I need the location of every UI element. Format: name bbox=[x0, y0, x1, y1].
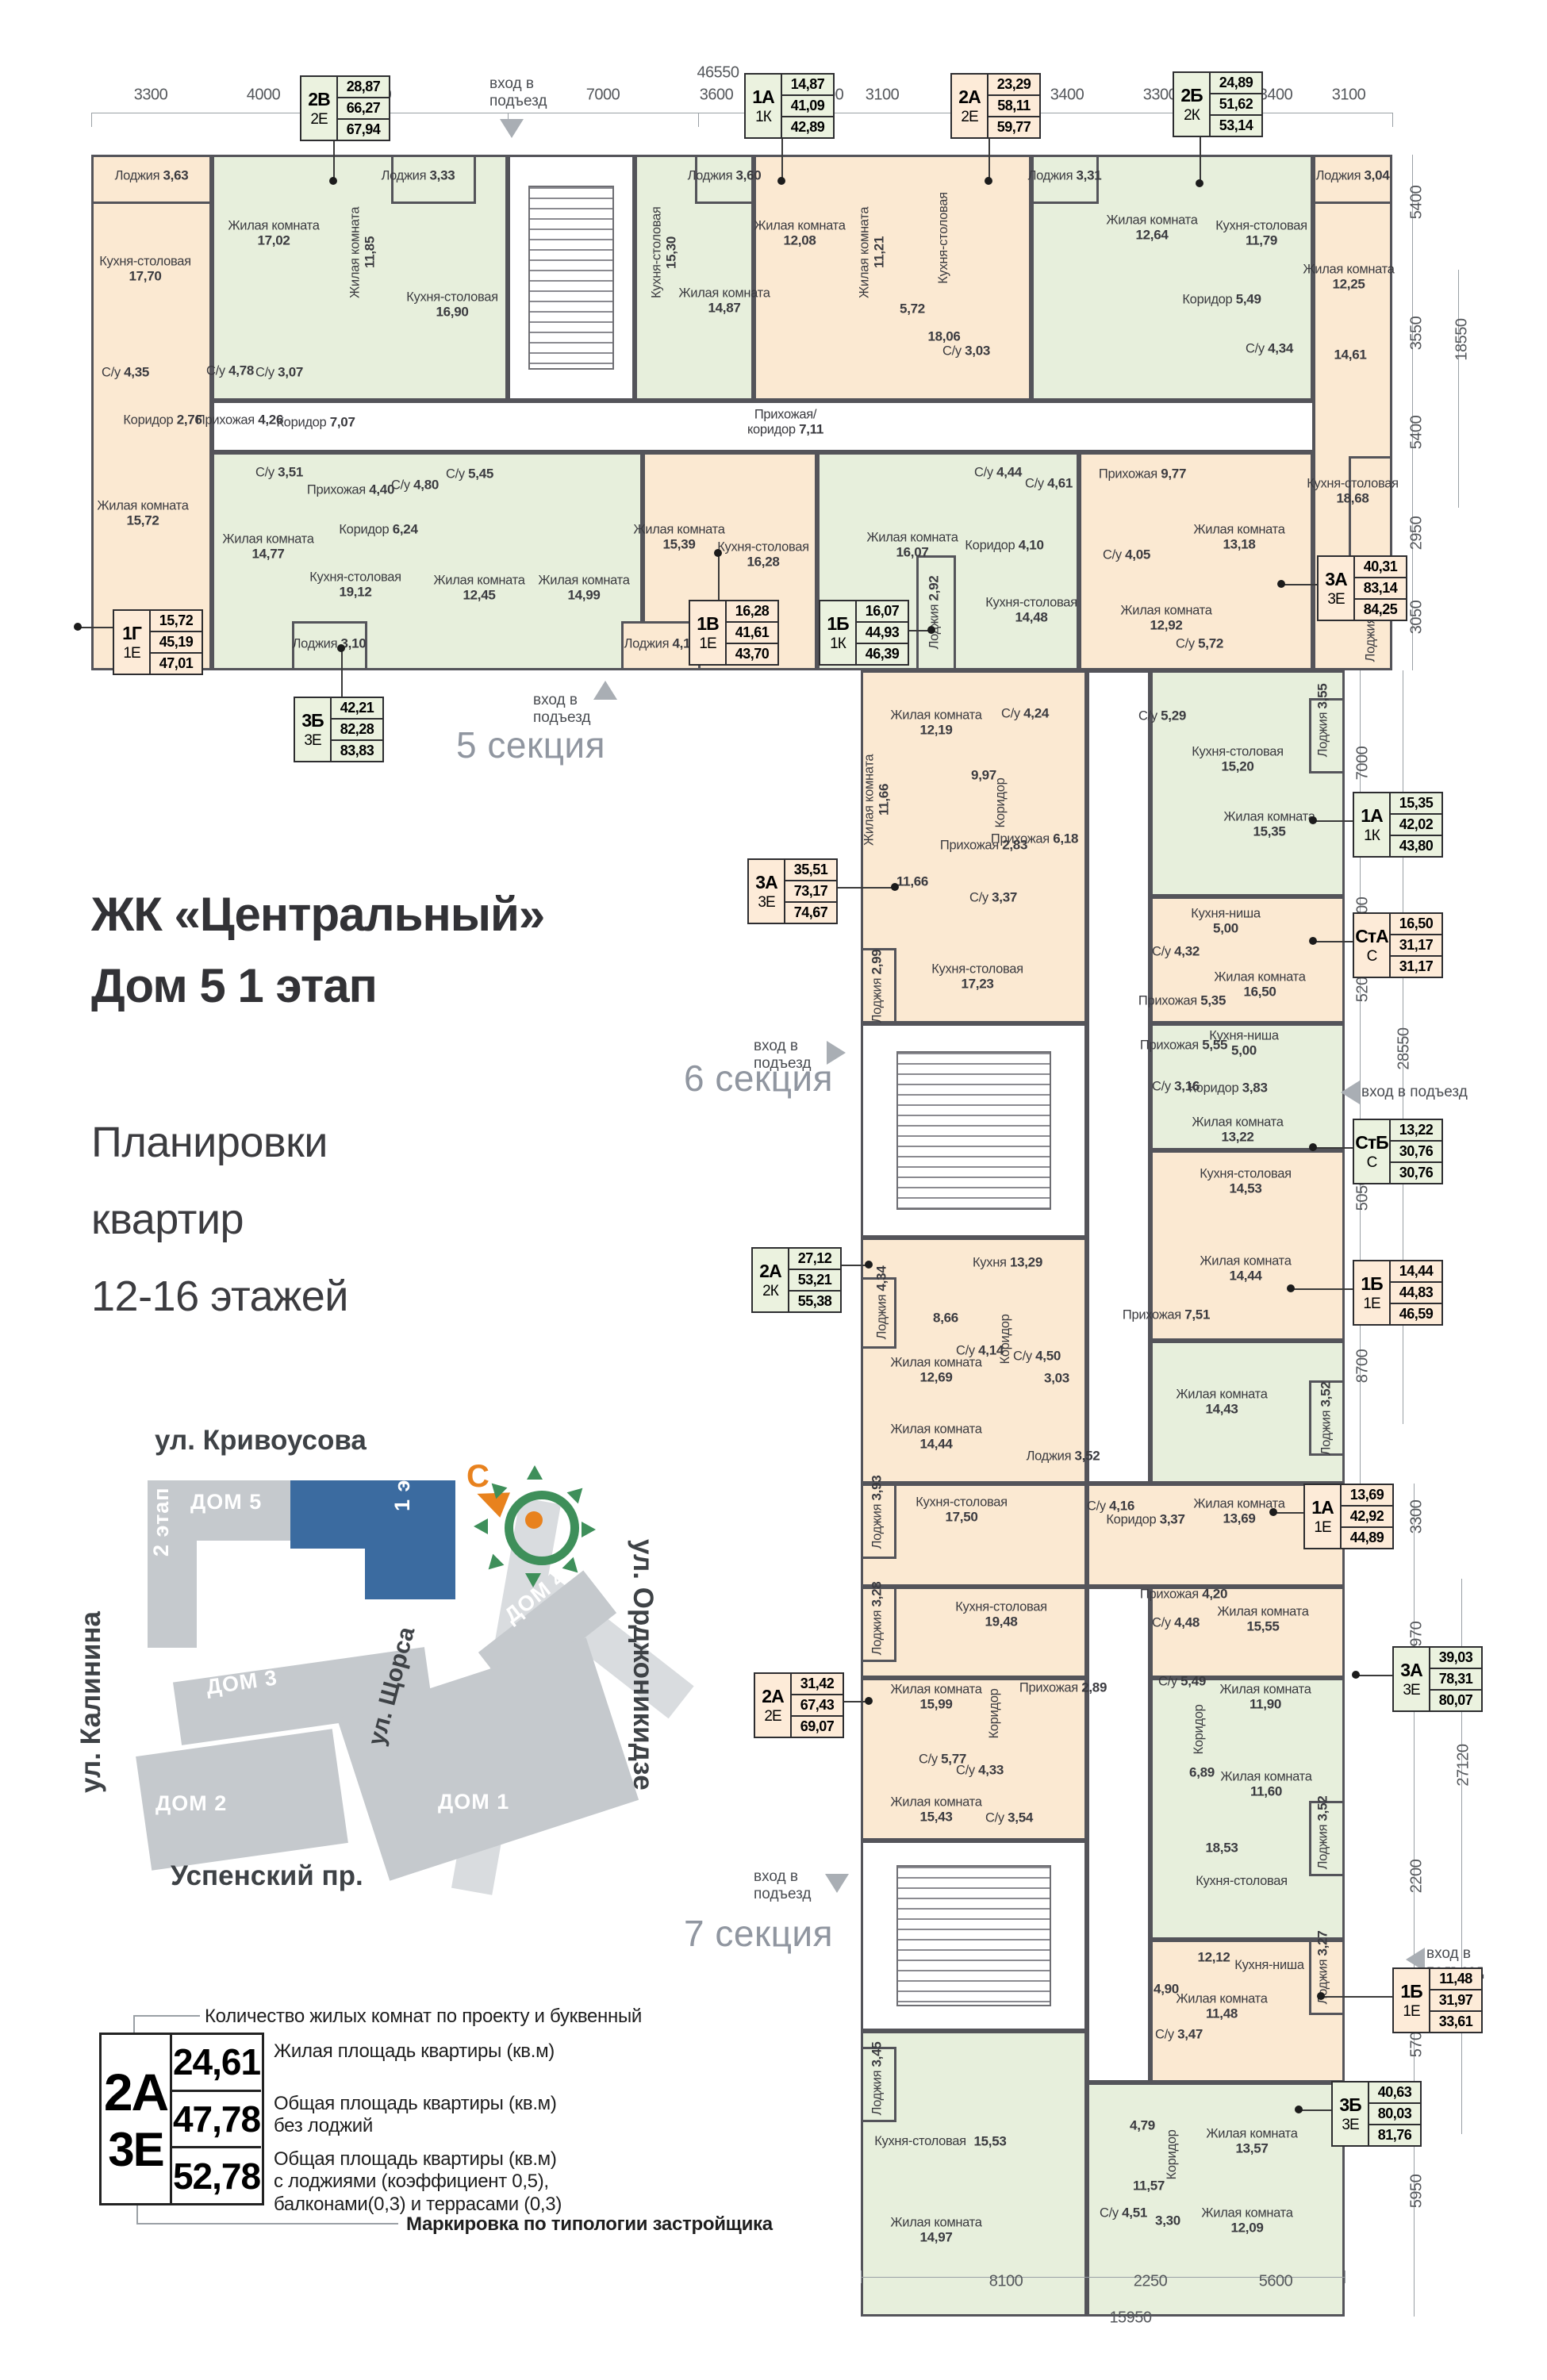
dimension-label: 3400 bbox=[1050, 86, 1084, 105]
apartment-area-value: 80,07 bbox=[1430, 1691, 1481, 1710]
room-label: Кухня-столовая 11,79 bbox=[1215, 220, 1308, 249]
apartment-code-main: 1А bbox=[1361, 805, 1382, 827]
apartment-area-value: 67,94 bbox=[338, 120, 389, 140]
room-label: Прихожая 7,51 bbox=[1123, 1308, 1210, 1323]
entrance-label: вход в подъезд bbox=[754, 1038, 812, 1073]
room-label: Жилая комната 15,39 bbox=[632, 524, 726, 553]
room-label: С/у 4,05 bbox=[1103, 548, 1150, 563]
room-label: Кухня-столовая bbox=[1196, 1875, 1288, 1889]
room-label: Лоджия 2,92 bbox=[927, 576, 942, 650]
room-label: Лоджия 4,34 bbox=[875, 1266, 890, 1340]
apartment-code-type: 1Е bbox=[123, 645, 140, 662]
apartment-area-value: 40,63 bbox=[1369, 2082, 1420, 2104]
compass-tick bbox=[525, 1573, 541, 1587]
room-label: С/у 3,07 bbox=[255, 366, 303, 381]
room-label: Лоджия 3,60 bbox=[688, 169, 762, 184]
stair-core bbox=[508, 155, 635, 401]
room-label: Жилая комната 12,69 bbox=[889, 1357, 983, 1386]
apartment-areas: 40,6380,0381,76 bbox=[1369, 2082, 1420, 2145]
legend-code-top: 2А bbox=[104, 2062, 167, 2122]
room-label: Лоджия 3,52 bbox=[1027, 1449, 1100, 1464]
compass-tick bbox=[474, 1518, 488, 1534]
room-label: Жилая комната 11,90 bbox=[1219, 1683, 1312, 1713]
apartment-code-main: 1В bbox=[697, 613, 718, 635]
room-label: С/у 4,33 bbox=[956, 1764, 1004, 1779]
compass-tick bbox=[567, 1483, 589, 1504]
apartment-code-type: 2Е bbox=[764, 1708, 781, 1725]
apartment-areas: 39,0378,3180,07 bbox=[1430, 1648, 1481, 1710]
apartment-code-type: 3Е bbox=[1342, 2117, 1358, 2134]
dimension-label: 27120 bbox=[1455, 1744, 1473, 1786]
apartment-area-value: 78,31 bbox=[1430, 1669, 1481, 1691]
room-label: Кухня-ниша bbox=[1234, 1959, 1303, 1973]
apartment-code: 3А3Е bbox=[1319, 557, 1355, 620]
room-label: Жилая комната 14,77 bbox=[221, 533, 315, 562]
room-label: Коридор 5,49 bbox=[1182, 293, 1261, 308]
apartment-area-value: 83,14 bbox=[1355, 578, 1406, 600]
room-label: Жилая комната 15,55 bbox=[1216, 1606, 1310, 1635]
room-label: Жилая комната 12,45 bbox=[432, 574, 526, 604]
apartment-areas: 16,0744,9346,39 bbox=[857, 601, 908, 664]
room-label: С/у 4,32 bbox=[1152, 945, 1200, 960]
room-label: С/у 4,16 bbox=[1087, 1499, 1134, 1514]
apartment-area-value: 55,38 bbox=[789, 1292, 840, 1311]
apartment-code-main: 1Б bbox=[827, 613, 848, 635]
room-label: Жилая комната 16,50 bbox=[1213, 971, 1307, 1000]
dimension-label: 18550 bbox=[1453, 318, 1472, 360]
room-label: Жилая комната 14,97 bbox=[889, 2217, 983, 2246]
room-label: Прихожая 2,89 bbox=[1019, 1681, 1107, 1696]
map-street-label: Успенский пр. bbox=[171, 1860, 363, 1892]
apartment-area-value: 73,17 bbox=[785, 881, 836, 903]
room-label: Жилая комната 14,99 bbox=[537, 574, 631, 604]
apartment-area-value: 30,76 bbox=[1391, 1142, 1441, 1163]
apartment-code-main: 1А bbox=[752, 86, 773, 108]
apartment-code: СтБС bbox=[1354, 1120, 1391, 1183]
apartment-areas: 23,2958,1159,77 bbox=[988, 75, 1039, 137]
apartment-areas: 13,2230,7630,76 bbox=[1391, 1120, 1441, 1183]
dimension-label: 5400 bbox=[1408, 186, 1426, 220]
room-label: С/у 3,37 bbox=[969, 891, 1017, 906]
callout-anchor-dot bbox=[1277, 580, 1285, 588]
apartment-area-value: 44,89 bbox=[1342, 1528, 1392, 1548]
apartment-area-value: 16,07 bbox=[857, 601, 908, 623]
room-label: Жилая комната 12,64 bbox=[1105, 214, 1199, 244]
apartment-callout: 1А1К14,8741,0942,89 bbox=[744, 73, 835, 139]
callout-anchor-dot bbox=[891, 883, 899, 891]
apartment-area-value: 31,17 bbox=[1391, 957, 1441, 977]
room-label: 4,79 bbox=[1130, 2119, 1155, 2134]
callout-anchor-dot bbox=[329, 177, 337, 185]
apartment-area-value: 67,43 bbox=[792, 1695, 843, 1717]
legend-row-label: Общая площадь квартиры (кв.м) без лоджий bbox=[274, 2093, 557, 2138]
callout-leader-line bbox=[1313, 820, 1353, 822]
room-label: Лоджия 4,18 bbox=[624, 637, 698, 652]
apartment-code-main: 3Б bbox=[1339, 2094, 1361, 2116]
apartment-areas: 16,2841,6143,70 bbox=[727, 601, 777, 664]
apartment-code-main: 3Б bbox=[301, 710, 323, 731]
room-label: Коридор 3,83 bbox=[1188, 1081, 1267, 1096]
room-label: Жилая комната 13,57 bbox=[1205, 2128, 1299, 2157]
dimension-label: 4000 bbox=[247, 86, 281, 105]
room bbox=[1087, 1587, 1150, 2082]
apartment-area-value: 23,29 bbox=[988, 75, 1039, 96]
room-label: 3,03 bbox=[1044, 1372, 1069, 1387]
apartment-area-value: 14,44 bbox=[1391, 1261, 1441, 1283]
dimension-label: 2950 bbox=[1408, 516, 1426, 551]
room-label: Жилая комната 15,99 bbox=[889, 1683, 983, 1713]
room-label: Кухня-столовая 14,53 bbox=[1199, 1168, 1292, 1197]
room bbox=[754, 155, 1031, 401]
map-building bbox=[148, 1541, 197, 1648]
callout-anchor-dot bbox=[1287, 1284, 1295, 1292]
apartment-area-value: 44,83 bbox=[1391, 1283, 1441, 1304]
apartment-callout: 3А3Е39,0378,3180,07 bbox=[1392, 1646, 1483, 1712]
room-label: Кухня-столовая 19,12 bbox=[309, 571, 402, 601]
apartment-code: 3А3Е bbox=[749, 860, 785, 923]
apartment-callout: 2А2Е31,4267,4369,07 bbox=[754, 1672, 844, 1738]
callout-anchor-dot bbox=[1309, 816, 1317, 824]
apartment-code: 3А3Е bbox=[1394, 1648, 1430, 1710]
room-label: Кухня-ниша 5,00 bbox=[1179, 908, 1273, 937]
apartment-code-type: С bbox=[1367, 948, 1377, 965]
dimension-label: 5600 bbox=[1259, 2273, 1293, 2291]
room bbox=[1087, 670, 1150, 1484]
room-label: Лоджия 3,93 bbox=[870, 1476, 885, 1549]
map-street-label: ул. Орджоникидзе bbox=[627, 1539, 658, 1791]
apartment-code-main: 2Б bbox=[1180, 85, 1202, 106]
room-label: Кухня-столовая 17,70 bbox=[98, 255, 192, 285]
room-label: Жилая комната 12,08 bbox=[753, 220, 846, 249]
room-label: Прихожая 4,26 bbox=[196, 413, 283, 428]
room-label: Коридор 2,76 bbox=[123, 413, 202, 428]
compass-ring bbox=[505, 1491, 579, 1565]
dimension-label: 3100 bbox=[866, 86, 900, 105]
compass-icon: С bbox=[470, 1464, 589, 1583]
room-label: Кухня-столовая 14,48 bbox=[985, 597, 1078, 626]
entrance-label: вход в подъезд bbox=[1361, 1084, 1468, 1101]
callout-anchor-dot bbox=[777, 177, 785, 185]
apartment-code: 1А1Е bbox=[1305, 1485, 1342, 1548]
room-label: Кухня-столовая 17,50 bbox=[915, 1496, 1008, 1526]
entrance-label: вход в подъезд bbox=[533, 692, 591, 727]
apartment-area-value: 15,72 bbox=[151, 611, 202, 632]
apartment-area-value: 13,22 bbox=[1391, 1120, 1441, 1142]
room-label: С/у 5,45 bbox=[446, 467, 493, 482]
apartment-callout: 1Б1Е14,4444,8346,59 bbox=[1353, 1260, 1443, 1326]
apartment-callout: 1Г1Е15,7245,1947,01 bbox=[113, 609, 203, 675]
dimension-label: 3300 bbox=[134, 86, 168, 105]
apartment-areas: 35,5173,1774,67 bbox=[785, 860, 836, 923]
room-label: С/у 4,35 bbox=[102, 366, 149, 381]
room-label: Жилая комната 17,02 bbox=[227, 220, 321, 249]
apartment-callout: 2А2Е23,2958,1159,77 bbox=[950, 73, 1041, 139]
room-label: С/у 3,51 bbox=[255, 466, 303, 481]
room-label: Лоджия 3,55 bbox=[1316, 684, 1331, 758]
dimension-label: 3600 bbox=[700, 86, 734, 105]
apartment-code-main: 1Г bbox=[122, 623, 141, 644]
apartment-code-type: 1Е bbox=[699, 635, 716, 653]
stairs-icon bbox=[528, 186, 614, 369]
apartment-callout: 3Б3Е42,2182,2883,83 bbox=[294, 697, 384, 762]
room-label: 15,53 bbox=[973, 2135, 1006, 2150]
apartment-callout: 1А1К15,3542,0243,80 bbox=[1353, 792, 1443, 858]
dimension-line bbox=[1412, 155, 1413, 670]
apartment-area-value: 74,67 bbox=[785, 903, 836, 923]
apartment-areas: 14,8741,0942,89 bbox=[782, 75, 833, 137]
dimension-label: 7000 bbox=[586, 86, 620, 105]
callout-anchor-dot bbox=[1309, 937, 1317, 945]
dimension-label: 5400 bbox=[1408, 416, 1426, 450]
apartment-area-value: 53,21 bbox=[789, 1270, 840, 1292]
room-label: Лоджия 3,28 bbox=[870, 1582, 885, 1656]
room-label: Кухня 13,29 bbox=[973, 1256, 1042, 1271]
room-label: С/у 4,34 bbox=[1246, 342, 1293, 357]
legend-area-value: 24,61 bbox=[172, 2035, 261, 2092]
apartment-callout: СтБС13,2230,7630,76 bbox=[1353, 1119, 1443, 1184]
apartment-area-value: 13,69 bbox=[1342, 1485, 1392, 1507]
room-label: Коридор 4,10 bbox=[965, 539, 1043, 554]
room-label: Лоджия 3,10 bbox=[293, 637, 367, 652]
callout-anchor-dot bbox=[1352, 1671, 1360, 1679]
callout-leader-line bbox=[78, 627, 113, 628]
apartment-code-type: 1Е bbox=[1314, 1519, 1330, 1537]
room-label: Кухня-столовая 15,20 bbox=[1191, 746, 1284, 775]
compass-tick bbox=[582, 1522, 596, 1537]
apartment-area-value: 35,51 bbox=[785, 860, 836, 881]
room-label: С/у 5,29 bbox=[1138, 709, 1186, 724]
room-label: Прихожая 4,20 bbox=[1140, 1587, 1227, 1603]
dimension-label: 8100 bbox=[989, 2273, 1023, 2291]
entrance-arrow-icon bbox=[500, 119, 524, 138]
apartment-area-value: 40,31 bbox=[1355, 557, 1406, 578]
apartment-area-value: 31,17 bbox=[1391, 935, 1441, 957]
legend-sample-callout: 2А 3Е 24,6147,7852,78 bbox=[99, 2033, 264, 2205]
apartment-callout: 2Б2К24,8951,6253,14 bbox=[1173, 71, 1263, 137]
room-label: Кухня-столовая 16,90 bbox=[405, 291, 499, 321]
callout-anchor-dot bbox=[1196, 179, 1203, 187]
room-label: С/у 4,44 bbox=[974, 466, 1022, 481]
apartment-area-value: 42,89 bbox=[782, 117, 833, 137]
room-label: Кухня-столовая 17,23 bbox=[931, 963, 1024, 992]
dimension-label: 28550 bbox=[1395, 1027, 1414, 1069]
apartment-area-value: 42,02 bbox=[1391, 815, 1441, 836]
room-label: Лоджия 3,52 bbox=[1316, 1796, 1331, 1870]
room-label: Прихожая 2,83 bbox=[940, 839, 1027, 854]
room-label: Жилая комната 11,60 bbox=[1219, 1771, 1313, 1800]
apartment-area-value: 43,70 bbox=[727, 644, 777, 664]
room-label: Жилая комната 13,18 bbox=[1192, 524, 1286, 553]
apartment-areas: 15,3542,0243,80 bbox=[1391, 793, 1441, 856]
apartment-area-value: 82,28 bbox=[332, 720, 382, 741]
dimension-label: 3400 bbox=[1259, 86, 1293, 105]
room-label: Жилая комната 14,44 bbox=[1199, 1255, 1292, 1284]
apartment-area-value: 46,59 bbox=[1391, 1304, 1441, 1324]
apartment-area-value: 15,35 bbox=[1391, 793, 1441, 815]
callout-anchor-dot bbox=[1295, 2106, 1303, 2113]
dimension-label: 3300 bbox=[1143, 86, 1177, 105]
section-label: 5 секция bbox=[456, 724, 605, 766]
callout-anchor-dot bbox=[865, 1697, 873, 1705]
room-label: 12,12 bbox=[1197, 1951, 1230, 1966]
room-label: Жилая комната 12,25 bbox=[1302, 263, 1395, 293]
legend-row-label: Общая площадь квартиры (кв.м) с лоджиями… bbox=[274, 2148, 562, 2216]
apartment-area-value: 43,80 bbox=[1391, 836, 1441, 856]
callout-leader-line bbox=[1356, 1675, 1392, 1676]
room-label: С/у 5,72 bbox=[1176, 637, 1223, 652]
apartment-code-main: 3А bbox=[1325, 569, 1346, 590]
apartment-areas: 15,7245,1947,01 bbox=[151, 611, 202, 674]
room-label: Лоджия 3,63 bbox=[115, 169, 189, 184]
legend-area-value: 47,78 bbox=[172, 2092, 261, 2149]
entrance-label: вход в подъезд bbox=[754, 1868, 812, 1903]
callout-anchor-dot bbox=[985, 177, 992, 185]
room-label: Жилая комната 12,19 bbox=[889, 709, 983, 739]
room-label: Кухня-столовая 18,68 bbox=[1306, 478, 1399, 507]
map-street-label: ул. Калинина bbox=[75, 1611, 107, 1793]
map-building-label: 2 этап bbox=[149, 1487, 174, 1557]
room-label: Кухня-столовая 15,30 bbox=[651, 193, 680, 312]
dimension-label: 2200 bbox=[1408, 1860, 1426, 1894]
apartment-code: 1В1Е bbox=[690, 601, 727, 664]
dimension-label: 46550 bbox=[697, 64, 739, 83]
room-label: Лоджия 3,33 bbox=[382, 169, 455, 184]
apartment-code-type: 1К bbox=[1364, 827, 1380, 845]
callout-anchor-dot bbox=[927, 626, 935, 634]
room-label: Лоджия 3,04 bbox=[1316, 169, 1390, 184]
room-label: С/у 4,51 bbox=[1100, 2206, 1147, 2221]
room-label: Кухня-столовая bbox=[874, 2135, 966, 2149]
room bbox=[1349, 456, 1392, 559]
apartment-area-value: 45,19 bbox=[151, 632, 202, 654]
dimension-label: 3050 bbox=[1408, 601, 1426, 635]
room-label: Жилая комната 16,07 bbox=[866, 532, 959, 561]
apartment-callout: 1В1Е16,2841,6143,70 bbox=[689, 600, 779, 666]
room-label: Жилая комната 14,87 bbox=[678, 287, 771, 317]
apartment-callout: 3А3Е35,5173,1774,67 bbox=[747, 858, 838, 924]
page-title-line2: Дом 5 1 этап bbox=[91, 958, 377, 1013]
room-label: Прихожая 5,35 bbox=[1138, 994, 1226, 1009]
apartment-code: СтАС bbox=[1354, 914, 1391, 977]
apartment-callout: 2А2К27,1253,2155,38 bbox=[751, 1247, 842, 1313]
dimension-label: 15950 bbox=[1109, 2309, 1151, 2328]
apartment-code-type: С bbox=[1367, 1154, 1377, 1172]
room-label: С/у 4,61 bbox=[1025, 477, 1073, 492]
room-label: С/у 5,49 bbox=[1158, 1675, 1206, 1690]
room-label: 11,57 bbox=[1133, 2179, 1165, 2194]
apartment-code-type: 1Е bbox=[1363, 1296, 1380, 1313]
apartment-area-value: 69,07 bbox=[792, 1717, 843, 1737]
room-label: Коридор bbox=[1165, 2129, 1180, 2179]
dimension-label: 5950 bbox=[1408, 2175, 1426, 2209]
apartment-area-value: 27,12 bbox=[789, 1249, 840, 1270]
callout-leader-line bbox=[718, 553, 720, 600]
apartment-code-main: СтБ bbox=[1355, 1132, 1388, 1154]
apartment-code: 2Б2К bbox=[1174, 73, 1211, 136]
room-label: Коридор 3,37 bbox=[1106, 1513, 1184, 1528]
apartment-area-value: 28,87 bbox=[338, 77, 389, 98]
room-label: С/у 4,80 bbox=[391, 478, 439, 493]
compass-center-dot bbox=[525, 1511, 543, 1529]
entrance-arrow-icon bbox=[593, 681, 617, 700]
apartment-area-value: 41,09 bbox=[782, 96, 833, 117]
room-label: Жилая комната 11,85 bbox=[349, 193, 378, 312]
callout-leader-line bbox=[1273, 1512, 1303, 1514]
apartment-code-type: 1К bbox=[830, 635, 846, 653]
room-label: Лоджия 2,99 bbox=[870, 950, 885, 1023]
room-label: Жилая комната 11,21 bbox=[858, 193, 888, 312]
apartment-area-value: 41,61 bbox=[727, 623, 777, 644]
dimension-label: 3100 bbox=[1332, 86, 1366, 105]
apartment-area-value: 46,39 bbox=[857, 644, 908, 664]
room-label: 18,53 bbox=[1205, 1841, 1238, 1856]
apartment-areas: 27,1253,2155,38 bbox=[789, 1249, 840, 1311]
room-label: Жилая комната 15,35 bbox=[1223, 811, 1316, 840]
apartment-area-value: 31,97 bbox=[1430, 1990, 1481, 2012]
room-label: Лоджия 3,31 bbox=[1028, 169, 1102, 184]
dimension-label: 2250 bbox=[1134, 2273, 1168, 2291]
apartment-code-main: 2А bbox=[759, 1261, 781, 1282]
apartment-callout: 2В2Е28,8766,2767,94 bbox=[300, 75, 390, 141]
room-label: Кухня-ниша 5,00 bbox=[1197, 1030, 1291, 1059]
room-label: Прихожая 9,77 bbox=[1099, 467, 1186, 482]
room-label: С/у 4,48 bbox=[1152, 1616, 1200, 1631]
apartment-code-type: 1К bbox=[755, 109, 771, 126]
map-building-label: ДОМ 5 bbox=[190, 1490, 262, 1514]
apartment-callout: 1А1Е13,6942,9244,89 bbox=[1303, 1484, 1394, 1549]
legend-area-value: 52,78 bbox=[172, 2148, 261, 2203]
apartment-area-value: 39,03 bbox=[1430, 1648, 1481, 1669]
apartment-area-value: 42,92 bbox=[1342, 1507, 1392, 1528]
apartment-code: 2А2Е bbox=[952, 75, 988, 137]
apartment-area-value: 30,76 bbox=[1391, 1163, 1441, 1183]
callout-anchor-dot bbox=[74, 623, 82, 631]
room-label: Коридор bbox=[1192, 1704, 1207, 1754]
entrance-label: вход в подъезд bbox=[489, 75, 547, 110]
apartment-area-value: 51,62 bbox=[1211, 94, 1261, 116]
room-label: Жилая комната 13,22 bbox=[1191, 1116, 1284, 1146]
callout-leader-line bbox=[341, 648, 343, 697]
compass-tick bbox=[562, 1557, 584, 1579]
apartment-code: 1А1К bbox=[746, 75, 782, 137]
map-building-label: ДОМ 2 bbox=[155, 1791, 227, 1816]
legend-row-label: Жилая площадь квартиры (кв.м) bbox=[274, 2040, 555, 2063]
apartment-areas: 11,4831,9733,61 bbox=[1430, 1969, 1481, 2032]
entrance-arrow-icon bbox=[827, 1041, 846, 1065]
stair-core bbox=[861, 1023, 1087, 1238]
room-label: Коридор bbox=[994, 777, 1008, 827]
room-label: Кухня-столовая 19,48 bbox=[954, 1601, 1048, 1630]
page-title-line1: ЖК «Центральный» bbox=[91, 887, 544, 942]
apartment-area-value: 47,01 bbox=[151, 654, 202, 674]
apartment-area-value: 58,11 bbox=[988, 96, 1039, 117]
room bbox=[1087, 2082, 1345, 2317]
legend-code-bottom: 3Е bbox=[108, 2122, 163, 2177]
map-street-label: ул. Кривоусова bbox=[155, 1425, 367, 1457]
apartment-code-type: 3Е bbox=[304, 732, 321, 750]
section-label: 7 секция bbox=[684, 1912, 833, 1955]
apartment-code-main: 2А bbox=[958, 86, 980, 108]
compass-tick bbox=[483, 1554, 505, 1576]
apartment-area-value: 24,89 bbox=[1211, 73, 1261, 94]
dimension-line bbox=[1345, 2271, 1345, 2283]
room-label: 5,72 bbox=[900, 302, 925, 317]
room-label: Лоджия 3,45 bbox=[870, 2042, 885, 2116]
room-label: С/у 3,47 bbox=[1155, 2028, 1203, 2043]
apartment-area-value: 80,03 bbox=[1369, 2104, 1420, 2125]
room-label: Жилая комната 15,43 bbox=[889, 1796, 983, 1825]
room-label: Жилая комната 11,66 bbox=[863, 740, 892, 859]
